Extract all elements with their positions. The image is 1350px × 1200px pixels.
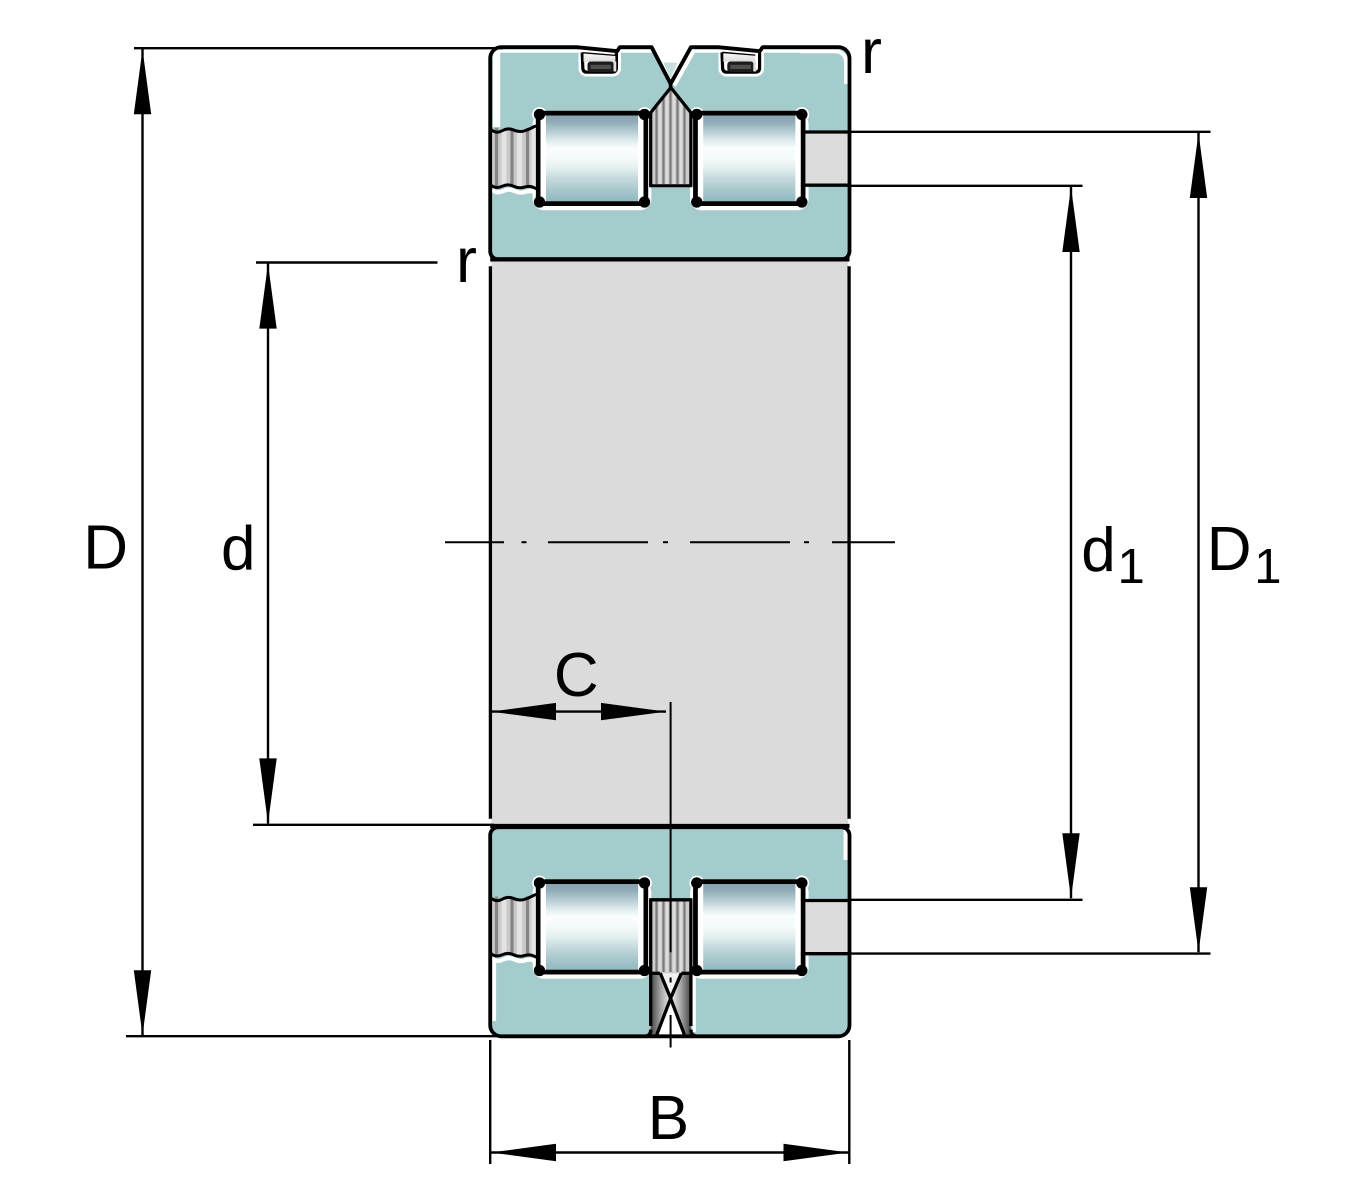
svg-text:r: r: [861, 17, 882, 87]
svg-text:r: r: [456, 226, 477, 296]
svg-text:B: B: [648, 1084, 689, 1153]
svg-text:d: d: [1081, 516, 1115, 585]
svg-text:1: 1: [1118, 540, 1145, 594]
svg-text:D: D: [83, 514, 128, 583]
svg-text:D: D: [1207, 515, 1252, 584]
svg-text:d: d: [221, 515, 255, 584]
svg-text:C: C: [554, 641, 599, 710]
svg-text:1: 1: [1254, 540, 1281, 594]
